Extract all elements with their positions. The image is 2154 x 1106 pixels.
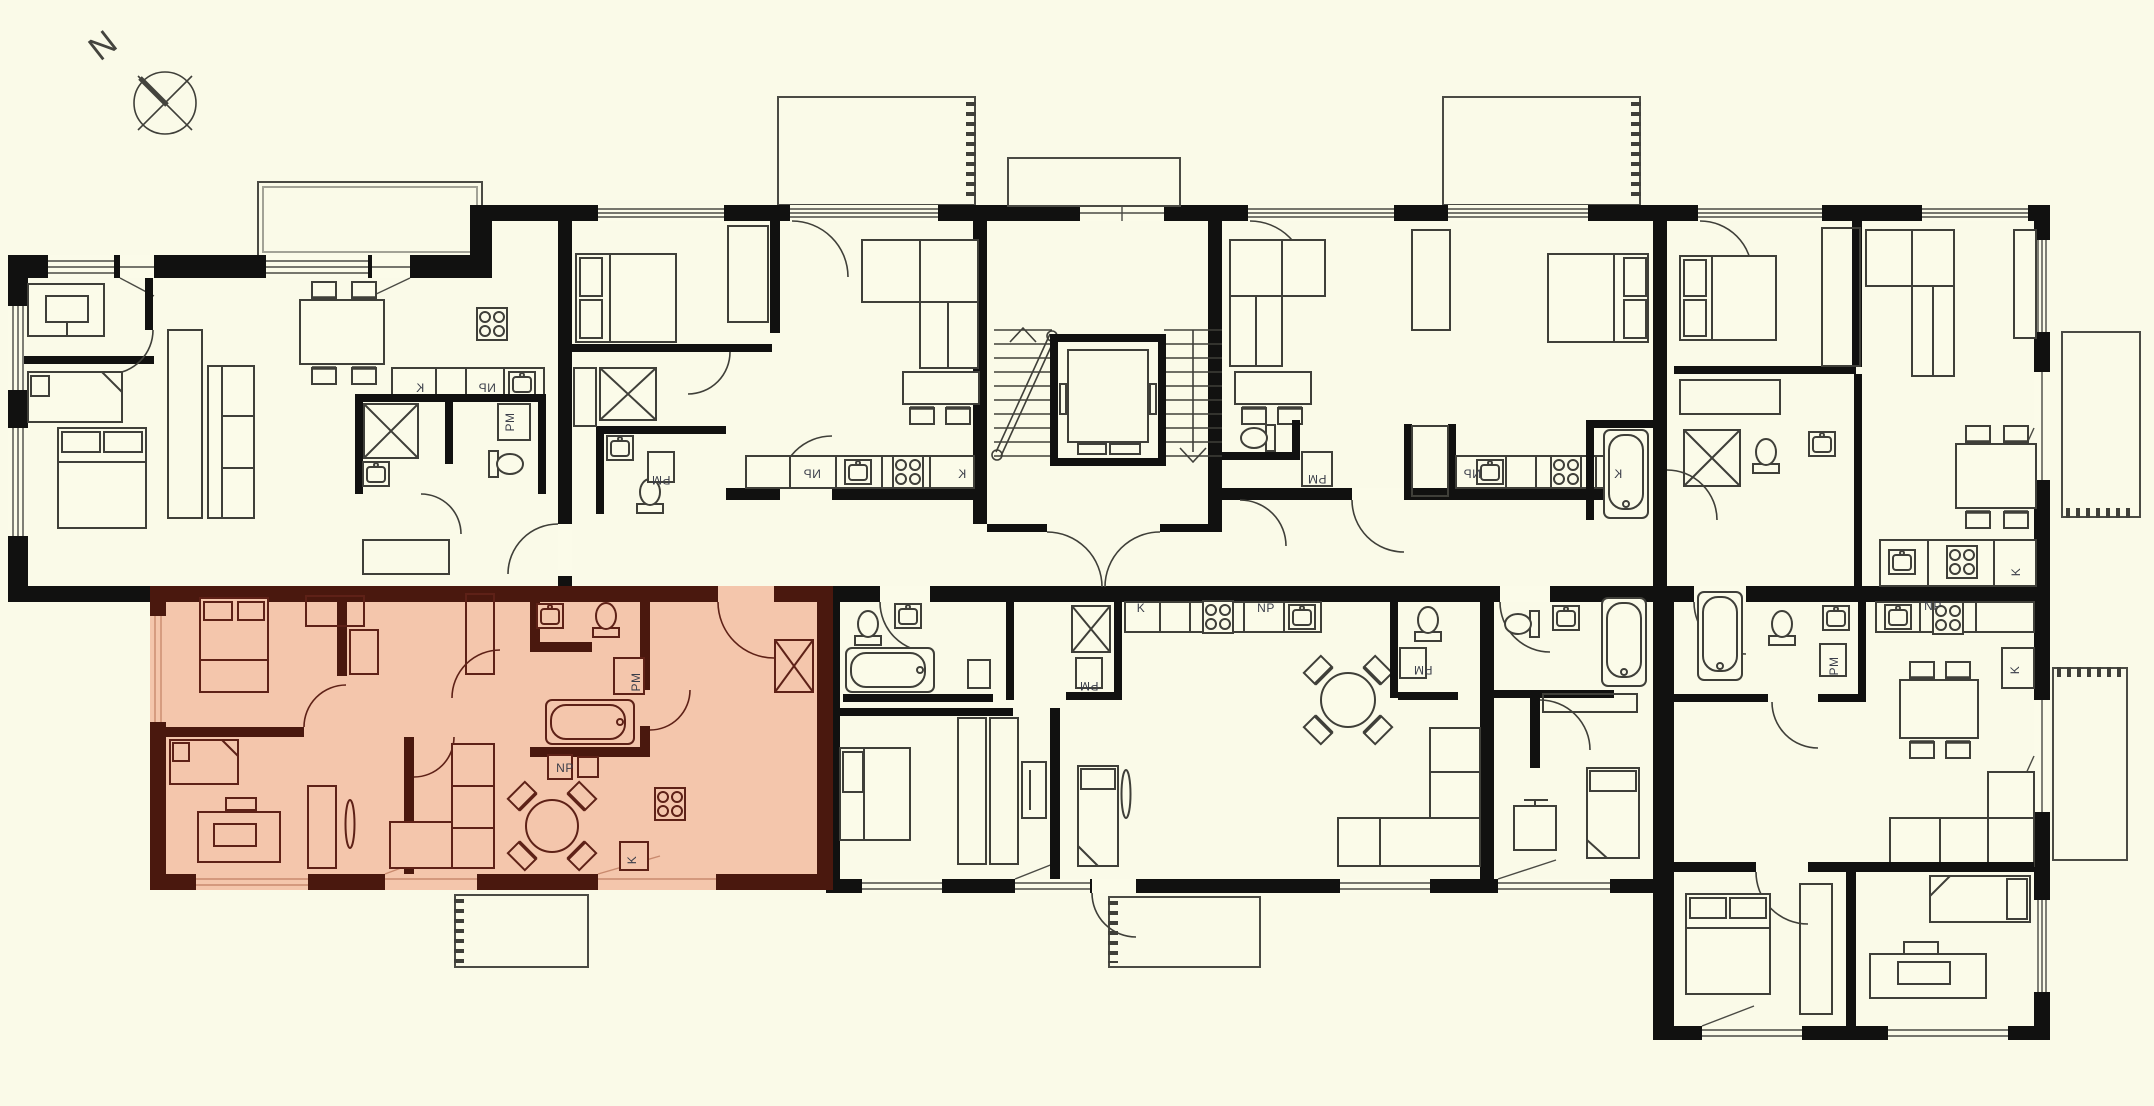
sliding-door[interactable] <box>346 800 355 848</box>
room-label: NP <box>1463 467 1481 481</box>
room-label: PM <box>629 673 643 692</box>
window <box>48 255 114 278</box>
room-label: PM <box>652 473 671 487</box>
single-bed <box>1587 768 1639 858</box>
room-label: PM <box>1827 657 1841 676</box>
room-label: PM <box>1080 679 1099 693</box>
double-bed <box>200 598 268 692</box>
double-bed <box>840 748 910 840</box>
window <box>8 306 28 390</box>
bathroom-sink <box>363 462 389 486</box>
window <box>196 874 308 890</box>
double-bed <box>58 428 146 528</box>
room-label: K <box>416 381 425 395</box>
bathroom-sink <box>895 604 921 628</box>
background <box>0 0 2154 1106</box>
toilet <box>489 451 523 477</box>
window <box>1888 1026 2008 1040</box>
bathtub <box>546 700 634 744</box>
closet <box>1072 606 1110 652</box>
floor-plan-drawing: N <box>0 0 2154 1106</box>
double-bed <box>576 254 676 342</box>
toilet <box>855 611 881 645</box>
bathtub <box>1698 592 1742 680</box>
sliding-door[interactable] <box>1122 770 1131 818</box>
closet <box>775 640 813 692</box>
bathtub <box>1604 430 1648 518</box>
closet <box>600 368 656 420</box>
window <box>1922 205 2028 221</box>
kitchen-counter <box>1125 601 1321 633</box>
window <box>1448 205 1588 221</box>
desk <box>1022 762 1046 818</box>
stove <box>655 788 685 820</box>
kitchen-counter <box>746 456 974 488</box>
toilet <box>593 603 619 637</box>
room-label: NP <box>1257 601 1275 615</box>
toilet <box>1505 611 1539 637</box>
room-label: NP <box>478 381 496 395</box>
window <box>598 205 724 221</box>
highlighted-apartment[interactable] <box>150 586 833 890</box>
kitchen-counter <box>1880 540 2036 586</box>
desk <box>1514 800 1556 850</box>
kitchen-cabinet <box>578 757 598 777</box>
floor-plan-page: N <box>0 0 2154 1106</box>
room-label: NP <box>803 467 821 481</box>
single-bed <box>1930 876 2030 922</box>
window <box>1340 879 1430 893</box>
washing-machine <box>968 660 990 688</box>
room-label: K <box>2008 666 2022 675</box>
window <box>266 255 368 278</box>
toilet <box>1769 611 1795 645</box>
stove <box>477 308 507 340</box>
room-label: K <box>1137 601 1146 615</box>
room-label: K <box>1614 467 1623 481</box>
bathroom-sink <box>1823 606 1849 630</box>
entrance-door[interactable] <box>1080 205 1164 221</box>
room-label: PM <box>503 413 517 432</box>
room-label: K <box>625 856 639 865</box>
room-label: NP <box>556 761 574 775</box>
double-bed <box>1548 254 1648 342</box>
double-bed <box>1680 256 1776 340</box>
shelf <box>2014 230 2036 338</box>
window <box>862 879 942 893</box>
double-bed <box>1686 894 1770 994</box>
desk <box>28 284 104 336</box>
single-bed <box>28 372 122 422</box>
window <box>150 616 166 722</box>
room-label: PM <box>1308 472 1327 486</box>
bathtub <box>1602 598 1646 686</box>
room-label: NP <box>1924 599 1942 613</box>
toilet <box>1753 439 1779 473</box>
bathroom-sink <box>1553 606 1579 630</box>
bathroom-sink <box>537 604 563 628</box>
single-bed <box>1078 766 1118 866</box>
room-label: K <box>958 467 967 481</box>
room-label: K <box>2009 568 2023 577</box>
window <box>8 428 28 536</box>
sofa <box>208 366 254 518</box>
window <box>2034 900 2050 992</box>
single-bed <box>170 740 238 784</box>
room-label: PM <box>1414 663 1433 677</box>
bathtub <box>846 648 934 692</box>
bathroom-sink <box>1809 432 1835 456</box>
